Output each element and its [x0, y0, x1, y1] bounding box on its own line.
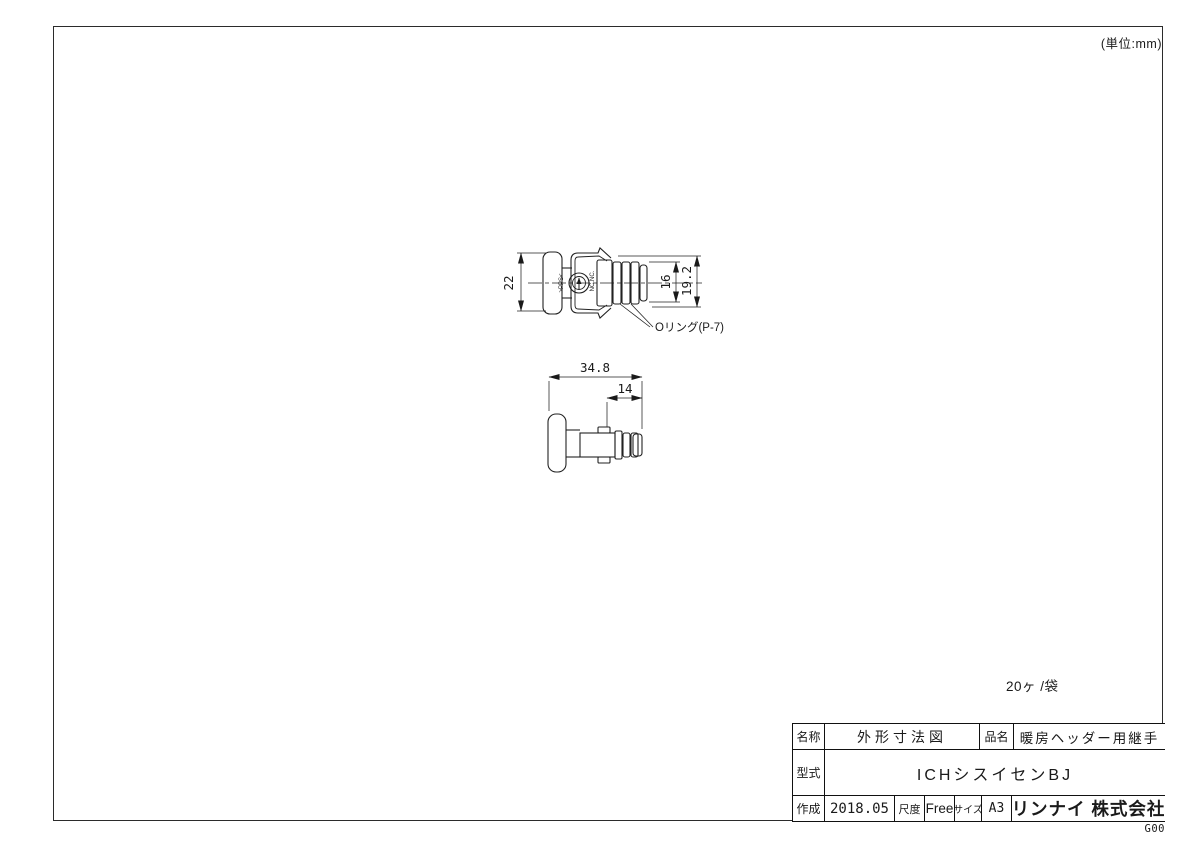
created-label: 作成	[793, 796, 824, 821]
side-view: 34.8 14	[548, 360, 642, 472]
side-flange-outline	[548, 414, 566, 472]
side-body-outline	[580, 433, 615, 457]
model-label: 型式	[793, 750, 824, 795]
dim192-text: 19.2	[679, 266, 694, 296]
size-label: サイズ	[954, 796, 981, 821]
technical-drawing-canvas: 22 16 19.2 Oリング(P-7) >PPS< NC.NC.	[0, 0, 1200, 848]
dim14-text: 14	[617, 381, 632, 396]
side-collar	[615, 431, 622, 459]
unit-note: (単位:mm)	[1090, 33, 1162, 52]
name-value: 外形寸法図	[824, 724, 979, 749]
name-label: 名称	[793, 724, 824, 749]
product-label: 品名	[979, 724, 1013, 749]
doc-code: G00	[1138, 823, 1165, 835]
oring-label: Oリング(P-7)	[655, 320, 724, 334]
oring-leader-2	[631, 304, 653, 327]
side-tab-top	[598, 427, 610, 433]
dim16-text: 16	[658, 274, 673, 289]
quantity-note: 20ヶ /袋	[1006, 675, 1059, 695]
scale-value: Free	[924, 796, 954, 821]
oring-leader-1	[620, 304, 650, 327]
model-value: ICHシスイセンBJ	[824, 750, 1165, 795]
dim348-text: 34.8	[580, 360, 610, 375]
dim22-text: 22	[501, 275, 516, 290]
title-block-row-3: 作成 2018.05 尺度 Free サイズ A3 リンナイ 株式会社	[793, 795, 1165, 821]
company-name: リンナイ 株式会社	[1011, 796, 1165, 821]
side-barb-rib-1	[623, 433, 630, 457]
side-barb-rib-2	[631, 433, 638, 457]
size-value: A3	[981, 796, 1011, 821]
side-tab-bottom	[598, 457, 610, 463]
scale-label: 尺度	[894, 796, 924, 821]
mold-mark-text: NC.NC.	[590, 270, 596, 291]
product-value: 暖房ヘッダー用継手	[1013, 724, 1165, 749]
title-block-row-2: 型式 ICHシスイセンBJ	[793, 749, 1165, 795]
material-mark-text: >PPS<	[559, 273, 565, 293]
title-block: 名称 外形寸法図 品名 暖房ヘッダー用継手 型式 ICHシスイセンBJ 作成 2…	[792, 723, 1165, 822]
front-view: 22 16 19.2 Oリング(P-7) >PPS< NC.NC.	[501, 248, 724, 334]
created-value: 2018.05	[824, 796, 894, 821]
drawing-sheet: 22 16 19.2 Oリング(P-7) >PPS< NC.NC.	[0, 0, 1200, 848]
title-block-row-1: 名称 外形寸法図 品名 暖房ヘッダー用継手	[793, 724, 1165, 749]
